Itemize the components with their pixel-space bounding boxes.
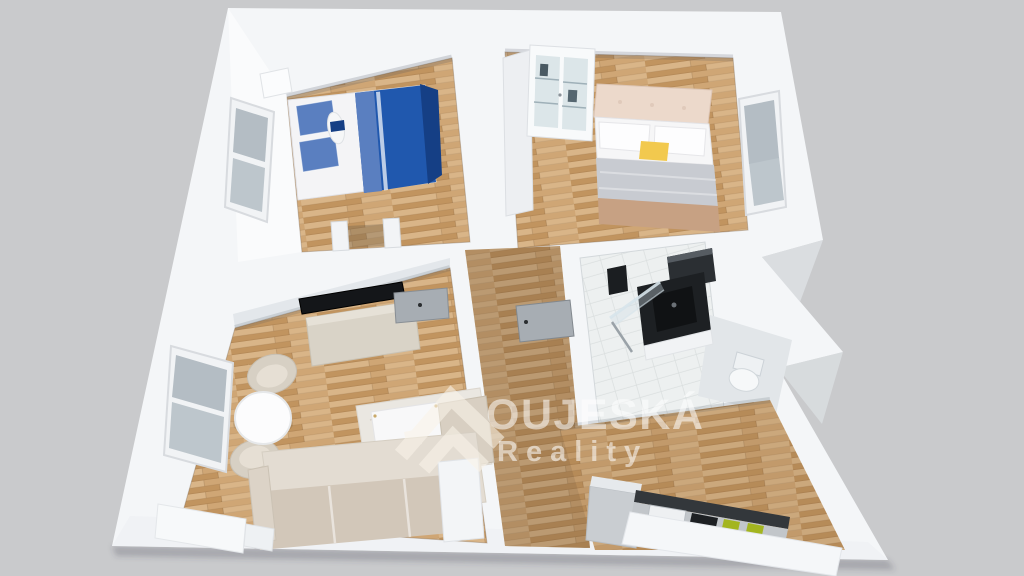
shower-head-panel [607, 265, 628, 295]
floorplan-scene: OUJESKÁ Reality [0, 0, 1024, 576]
watermark-brand: OUJESKÁ [486, 391, 704, 439]
window-glass-pane [744, 100, 779, 164]
glass-display-cabinet [527, 45, 595, 141]
watermark-tagline: Reality [497, 436, 648, 468]
headboard-tuft [650, 103, 654, 107]
cabinet-handle [558, 93, 561, 96]
single-bed-blue [288, 84, 442, 200]
headboard-tuft [682, 106, 686, 110]
table-leg [373, 414, 376, 417]
storage-chest-step [244, 524, 274, 551]
floorplan-render: OUJESKÁ Reality [0, 0, 1024, 576]
bolster-band [330, 120, 345, 132]
cabinet-items [540, 64, 549, 76]
door-handle [418, 303, 422, 307]
closet-shadow [347, 224, 387, 248]
closet-wall [331, 221, 349, 251]
plaid-pillow [299, 136, 339, 172]
window-bedroom-master [739, 91, 786, 215]
door-handle [524, 320, 528, 324]
round-dining-table [235, 392, 291, 444]
window-bedroom-small [225, 98, 274, 222]
side-cabinet [438, 458, 484, 542]
window-living [164, 346, 233, 472]
nightstand [260, 68, 292, 98]
headboard-tuft [618, 100, 622, 104]
closet-wall [383, 218, 401, 248]
cabinet-items [568, 90, 578, 102]
faucet [672, 303, 677, 308]
yellow-accent-pillow [639, 141, 669, 161]
window-glass-pane [749, 157, 784, 206]
hallway [516, 300, 574, 342]
double-bed [594, 84, 720, 232]
